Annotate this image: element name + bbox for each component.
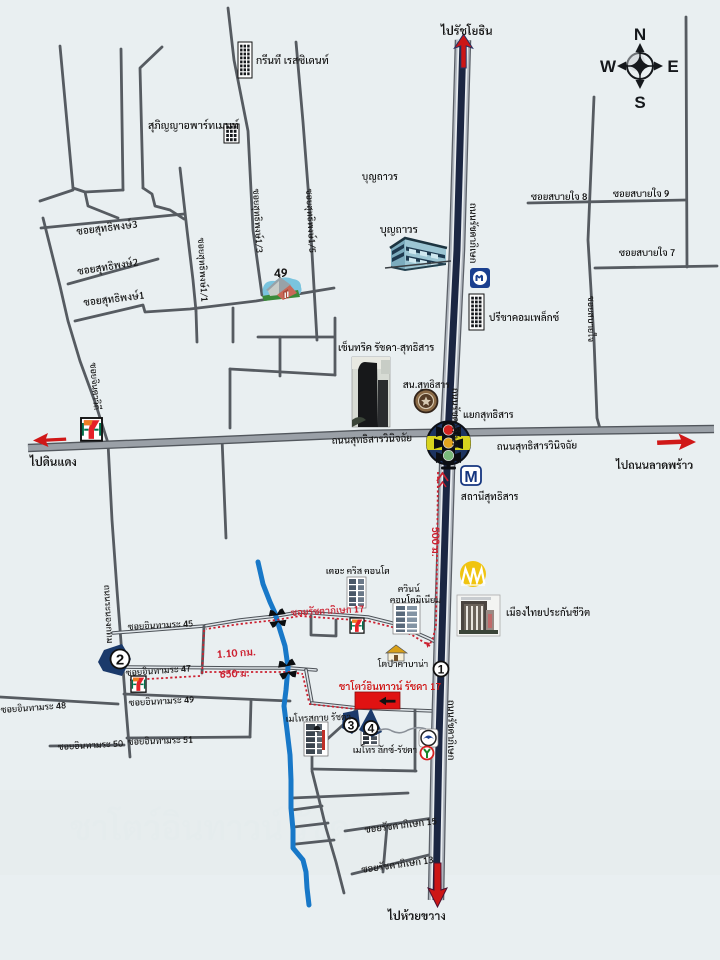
svg-text:E: E (667, 57, 678, 76)
svg-text:N: N (634, 25, 646, 44)
svg-text:M: M (464, 469, 477, 486)
svg-text:1: 1 (438, 662, 445, 676)
svg-text:3: 3 (348, 718, 355, 732)
svg-text:S: S (634, 93, 645, 112)
svg-text:4: 4 (368, 721, 375, 735)
svg-text:W: W (600, 57, 617, 76)
svg-text:2: 2 (116, 651, 124, 668)
